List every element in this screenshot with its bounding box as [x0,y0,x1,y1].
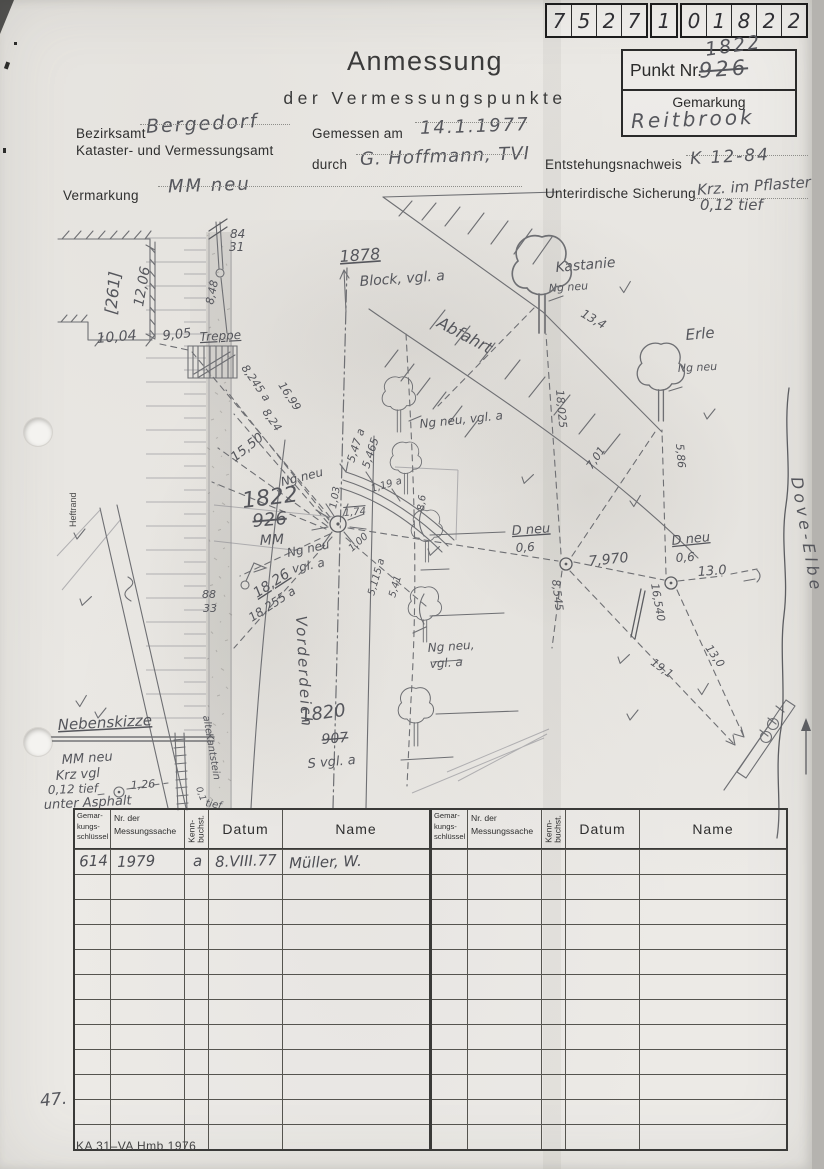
table-cell [566,1075,640,1099]
sketch-label: 33 [203,602,217,615]
table-cell [283,1075,429,1099]
serial-digit: 1 [706,5,731,36]
sketch-label: 5,115 a [366,557,387,596]
table-header-cell: Datum [566,810,640,848]
table-row [432,849,786,874]
table-cell [432,850,468,874]
table-cell [468,1125,542,1149]
table-cell [468,850,542,874]
table-row [432,1124,786,1149]
table-cell [283,1050,429,1074]
table-row [75,999,429,1024]
table-cell [432,950,468,974]
table-cell [283,1100,429,1124]
table-cell [566,1125,640,1149]
entstehungsnachweis-label: Entstehungsnachweis [545,157,682,172]
point-d-neu-2 [665,577,677,589]
table-cell [75,900,111,924]
table-cell [209,950,283,974]
table-cell [283,925,429,949]
table-cell [75,1075,111,1099]
punkt-nr-label: Punkt Nr. [630,60,702,81]
table-cell [542,1000,566,1024]
table-row [432,1099,786,1124]
sketch-label: 5,86 [673,443,688,469]
scanned-form-page: { "paper": { "serial_groups": [["7","5",… [0,0,824,1169]
table-row: 6141979a8.VIII.77Müller, W. [75,849,429,874]
table-cell [111,900,185,924]
tree-symbol [637,343,684,421]
table-cell [185,875,209,899]
table-cell [566,925,640,949]
table-header-cell: Kenn-buchst. [542,810,566,848]
table-row [75,924,429,949]
table-cell [209,1100,283,1124]
table-cell [542,1125,566,1149]
hole-punch-top [24,418,52,446]
table-cell [566,875,640,899]
table-cell: 1979 [111,850,185,874]
table-row [432,1074,786,1099]
serial-digit-group: 1 [650,3,678,38]
sketch-label: 18,025 [553,389,569,428]
table-cell [432,1025,468,1049]
serial-number-box: 7527101822 [545,3,810,38]
table-cell [111,875,185,899]
sketch-label: 13.0 [697,563,727,580]
durch-label: durch [312,157,347,172]
measurement-table-right: Gemar-kungs-schlüsselNr. derMessungssach… [430,808,788,1151]
serial-digit: 0 [682,5,706,36]
scan-artifact [3,148,6,153]
table-row [75,1074,429,1099]
table-cell [209,1050,283,1074]
table-cell [468,975,542,999]
table-cell [566,1100,640,1124]
tree-symbol [398,688,433,746]
scan-artifact [14,42,17,45]
table-row [75,1024,429,1049]
table-cell [640,900,786,924]
table-cell [468,1100,542,1124]
sketch-label: 1,19 a [370,476,403,495]
sketch-label: 0,6 [675,550,695,565]
serial-digit: 1 [652,5,676,36]
table-cell [209,1075,283,1099]
table-cell [640,925,786,949]
sketch-label: 8,245 a [239,362,274,404]
measurement-table-left: Gemar-kungs-schlüsselNr. derMessungssach… [73,808,431,1151]
table-header-cell: Kenn-buchst. [185,810,209,848]
table-cell [75,1100,111,1124]
table-cell [209,1000,283,1024]
sketch-label: Nebenskizze [57,711,152,734]
stray-strokes [412,729,549,793]
sketch-label: MM neu [61,749,113,768]
table-cell [209,975,283,999]
serial-digit: 2 [781,5,806,36]
sketch-label: Erle [685,324,716,344]
table-cell [283,900,429,924]
table-cell [542,850,566,874]
table-cell [111,1025,185,1049]
gemessen-am-label: Gemessen am [312,126,403,141]
table-cell [75,975,111,999]
table-cell [566,850,640,874]
vi-mark [617,653,629,664]
vi-marks [74,282,715,720]
table-cell [111,925,185,949]
table-row [75,1099,429,1124]
table-cell: 8.VIII.77 [209,850,283,874]
table-cell [640,1000,786,1024]
table-cell [432,1125,468,1149]
serial-digit-group: 7527 [545,3,648,38]
table-cell [185,1000,209,1024]
sketch-label: D neu [511,521,551,539]
table-cell [185,1025,209,1049]
vi-mark [704,409,715,419]
table-cell [111,975,185,999]
table-cell [75,1000,111,1024]
sketch-label: 16,540 [648,582,667,622]
table-row [75,1049,429,1074]
table-cell [432,1050,468,1074]
table-cell [185,1050,209,1074]
river-bank [777,388,789,838]
sketch-label: 1,00 [347,531,371,554]
table-cell [209,925,283,949]
table-cell [185,1100,209,1124]
sketch-label: 1878 [339,244,381,266]
table-cell [185,950,209,974]
table-cell [283,1125,429,1149]
sketch-label: 8,6 [416,494,429,511]
table-row [432,1049,786,1074]
table-row [75,874,429,899]
table-cell [640,1025,786,1049]
table-cell [640,850,786,874]
table-cell [283,950,429,974]
table-cell [283,1025,429,1049]
table-cell [640,975,786,999]
serial-digit: 2 [596,5,621,36]
form-title-line2: der Vermessungspunkte [255,88,595,109]
vi-mark [697,684,709,695]
table-cell [542,875,566,899]
trees [382,236,684,746]
form-title-line1: Anmessung [255,46,595,77]
table-cell [432,900,468,924]
table-row [75,899,429,924]
sketch-label: S vgl. a [307,753,356,772]
table-header-cell: Gemar-kungs-schlüssel [432,810,468,848]
table-cell [640,1100,786,1124]
sketch-label: vgl. a [291,555,326,576]
sketch-label: 15,50 [228,430,267,465]
table-row [75,974,429,999]
table-cell: a [185,850,209,874]
table-cell [185,975,209,999]
sketch-label: 8,24 [260,406,285,434]
table-cell [283,1000,429,1024]
serial-digit: 7 [621,5,646,36]
table-header-cell: Gemar-kungs-schlüssel [75,810,111,848]
table-cell [640,950,786,974]
table-cell [209,1025,283,1049]
form-code: KA 31–VA Hmb 1976 [76,1139,196,1153]
sketch-labels: [261]12,0610,0484318,489,05Treppe16,998,… [43,227,824,813]
table-cell [185,1075,209,1099]
sketch-label: 13,0 [703,642,728,670]
sketch-label: 7,970 [588,550,630,570]
point-d-neu-1 [560,558,572,570]
table-cell [283,975,429,999]
sketch-label: 7,01 [584,444,608,472]
table-cell [566,975,640,999]
table-cell [566,950,640,974]
sketch-label: 88 [202,588,216,601]
sketch-label: 31 [229,240,244,254]
table-cell [542,1050,566,1074]
sketch-label: 10,04 [96,328,137,347]
sketch-label: 1,74 [343,506,366,519]
sketch-label: [261] [101,271,124,316]
table-row [432,924,786,949]
dashed-network [438,308,760,745]
vi-mark [627,710,638,720]
sketch-label: 19,1 [648,656,675,681]
table-cell [75,875,111,899]
sketch-label: D neu [671,530,711,549]
table-cell [432,875,468,899]
table-row [75,949,429,974]
table-cell [542,1075,566,1099]
sketch-label: 84 [230,227,245,241]
table-cell [111,1050,185,1074]
sketch-label: Abfahrt [433,312,496,358]
table-cell [432,1075,468,1099]
fence-line [395,296,682,786]
table-cell [111,1000,185,1024]
table-cell [468,950,542,974]
amt-line: Kataster- und Vermessungsamt [76,143,274,158]
table-header-cell: Name [640,810,786,848]
table-row [432,874,786,899]
table-row [432,974,786,999]
table-cell [640,1050,786,1074]
table-header-cell: Datum [209,810,283,848]
gemarkung-value: Reitbrook [631,105,755,133]
sketch-label: Ng neu, vgl. a [419,408,504,431]
sketch-label: 16,99 [275,380,303,413]
entstehungsnachweis-value: K 12-84 [690,145,771,169]
dash-dot-axis [333,268,347,808]
table-cell [640,1075,786,1099]
table-cell [566,900,640,924]
table-header-cell: Name [283,810,429,848]
bezirksamt-label: Bezirksamt [76,126,146,141]
serial-digit: 7 [547,5,571,36]
table-header-cell: Nr. derMessungssache [468,810,542,848]
form-title: Anmessung der Vermessungspunkte [255,46,595,109]
table-cell [432,925,468,949]
unterirdische-sicherung-label: Unterirdische Sicherung [545,186,696,201]
table-row [432,1024,786,1049]
table-row [432,999,786,1024]
table-cell [111,1100,185,1124]
hole-punch-bottom [24,728,52,756]
table-cell [542,975,566,999]
vermarkung-label: Vermarkung [63,188,139,203]
page-note: 47. [39,1089,68,1112]
table-cell [542,950,566,974]
table-cell [542,900,566,924]
table-cell [432,1000,468,1024]
table-cell [542,1025,566,1049]
table-row [432,949,786,974]
table-cell [542,925,566,949]
table-cell [209,1125,283,1149]
punkt-nr-box: Punkt Nr. 926 1822 Gemarkung Reitbrook [621,49,797,137]
table-cell [542,1100,566,1124]
table-cell [468,875,542,899]
sketch-label: Dove-Elbe [787,475,824,594]
table-row [432,899,786,924]
vi-mark [74,529,85,539]
sketch-label: 926 [252,508,288,532]
sketch-label: Heftrand [68,492,78,527]
gemessen-am-value: 14.1.1977 [420,114,530,139]
sketch-label: 13,4 [579,306,609,331]
table-cell [566,1025,640,1049]
sketch-label: Kastanie [555,255,616,276]
vi-mark [75,696,87,707]
table-cell [640,875,786,899]
table-cell [185,925,209,949]
sketch-label: 907 [321,730,349,748]
sketch-label: vgl. a [429,655,463,671]
table-cell [209,900,283,924]
table-cell [75,1025,111,1049]
sketch-label: 0,6 [515,540,535,555]
arrow-1878 [340,270,349,312]
table-cell [566,1000,640,1024]
table-cell [432,975,468,999]
table-header-cell: Nr. derMessungssache [111,810,185,848]
table-cell [111,1075,185,1099]
sketch-label: 8,545 [549,579,566,612]
table-cell [111,950,185,974]
table-cell [75,925,111,949]
sketch-label: 5,41 [387,574,404,598]
table-cell [468,900,542,924]
sketch-label: 1,26 [130,777,155,792]
sketch-label: Ng neu, [427,638,475,655]
table-cell [468,1025,542,1049]
table-cell [185,900,209,924]
table-cell: 614 [75,850,111,874]
vi-mark [521,473,533,484]
table-cell [468,1050,542,1074]
sketch-label: MM [259,532,284,549]
sketch-label: Ng neu [286,537,331,560]
table-cell [640,1125,786,1149]
table-cell [468,1075,542,1099]
vi-mark [619,282,631,293]
sketch-label: Block, vgl. a [359,268,445,290]
table-cell [468,1000,542,1024]
sketch-label: Treppe [199,328,241,344]
serial-digit: 5 [571,5,596,36]
serial-digit: 2 [756,5,781,36]
table-cell [468,925,542,949]
table-cell [566,1050,640,1074]
table-cell [209,875,283,899]
table-cell [75,950,111,974]
sketch-label: 9,05 [162,326,192,344]
vi-mark [79,595,91,606]
table-cell [75,1050,111,1074]
table-cell [432,1100,468,1124]
north-arrow [801,718,811,774]
table-cell: Müller, W. [283,850,429,874]
table-cell [283,875,429,899]
